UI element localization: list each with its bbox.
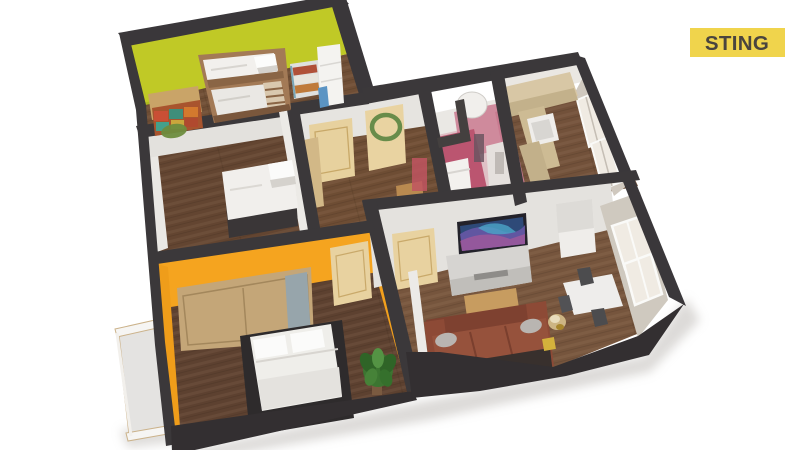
- svg-text:STING: STING: [705, 32, 769, 55]
